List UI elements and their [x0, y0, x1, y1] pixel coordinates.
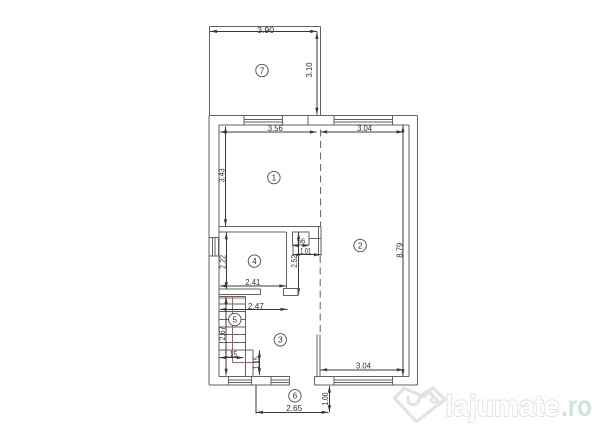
svg-text:.ro: .ro — [561, 390, 592, 423]
svg-text:1.15: 1.15 — [251, 356, 261, 369]
svg-text:3.04: 3.04 — [357, 123, 372, 133]
svg-text:2: 2 — [358, 241, 363, 250]
svg-text:8.79: 8.79 — [395, 243, 405, 258]
svg-text:3.56: 3.56 — [268, 123, 283, 133]
svg-text:1.00: 1.00 — [320, 392, 330, 405]
svg-text:3.43: 3.43 — [216, 168, 226, 182]
svg-text:2.67: 2.67 — [217, 326, 227, 340]
svg-text:2.47: 2.47 — [248, 301, 264, 311]
svg-text:1.01: 1.01 — [300, 246, 311, 256]
svg-text:2.52: 2.52 — [289, 255, 299, 268]
svg-text:3.04: 3.04 — [356, 361, 371, 371]
svg-text:7: 7 — [260, 66, 265, 75]
svg-text:5: 5 — [233, 315, 238, 324]
svg-text:lajumate: lajumate — [446, 390, 560, 423]
svg-text:3: 3 — [278, 336, 283, 345]
svg-text:2.41: 2.41 — [245, 277, 260, 287]
svg-text:3.10: 3.10 — [304, 62, 314, 77]
svg-text:2.22: 2.22 — [218, 255, 228, 269]
svg-text:4: 4 — [252, 257, 257, 266]
svg-text:1.15: 1.15 — [224, 349, 237, 359]
svg-text:3.90: 3.90 — [257, 25, 274, 35]
svg-text:6: 6 — [293, 392, 298, 401]
svg-text:2.65: 2.65 — [286, 403, 302, 413]
svg-text:1: 1 — [272, 173, 277, 182]
